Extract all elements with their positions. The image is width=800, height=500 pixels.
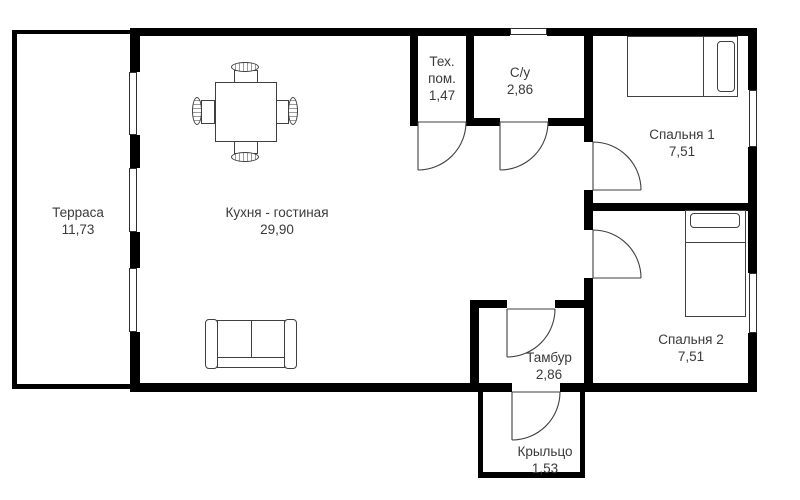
room-label-vestibule: Тамбур 2,86 [526,349,572,383]
room-name: Терраса [52,204,104,221]
sofa-seats [217,320,285,359]
room-label-porch: Крыльцо 1,53 [517,443,572,477]
room-name: Крыльцо [517,443,572,460]
chair-left-seat [201,100,215,124]
room-area: 29,90 [225,221,328,238]
chair-left-backrest [192,97,202,125]
chair-top-backrest [231,62,259,72]
room-label-terrace: Терраса 11,73 [52,204,104,238]
sofa-cushion-divider [251,321,252,358]
room-name: Спальня 1 [649,126,715,143]
door-porch [512,392,560,440]
door-tech-room [418,122,466,170]
room-name: Кухня - гостиная [225,204,328,221]
room-label-bedroom-2: Спальня 2 7,51 [658,331,724,365]
room-name: Тамбур [526,349,572,366]
dining-table [215,82,277,142]
door-bedroom-1 [593,142,641,190]
room-area: 2,86 [507,81,533,98]
bed-2-blanket-line [686,242,745,243]
door-bedroom-2 [593,230,641,278]
room-area: 7,51 [658,348,724,365]
room-area: 1,47 [419,87,465,104]
room-label-tech-room: Тех. пом. 1,47 [419,53,465,104]
room-area: 1,53 [517,460,572,477]
chair-right-seat [275,100,289,124]
sofa-backrest [217,357,285,368]
bed-1-blanket-line [703,37,704,96]
room-label-kitchen-living: Кухня - гостиная 29,90 [225,204,328,238]
room-name: Тех. пом. [419,53,465,87]
room-label-bedroom-1: Спальня 1 7,51 [649,126,715,160]
room-area: 11,73 [52,221,104,238]
chair-bottom-backrest [231,152,259,162]
sofa-armrest-right [284,319,297,369]
bed-2-pillow [690,213,740,228]
floor-plan: Терраса 11,73 Кухня - гостиная 29,90 Тех… [0,0,800,500]
chair-right-backrest [288,97,298,125]
room-area: 7,51 [649,143,715,160]
door-bathroom [500,122,548,170]
sofa-armrest-left [205,319,218,369]
room-name: С/у [507,64,533,81]
room-label-bathroom: С/у 2,86 [507,64,533,98]
bed-1-pillow [717,41,735,92]
room-name: Спальня 2 [658,331,724,348]
room-area: 2,86 [526,366,572,383]
